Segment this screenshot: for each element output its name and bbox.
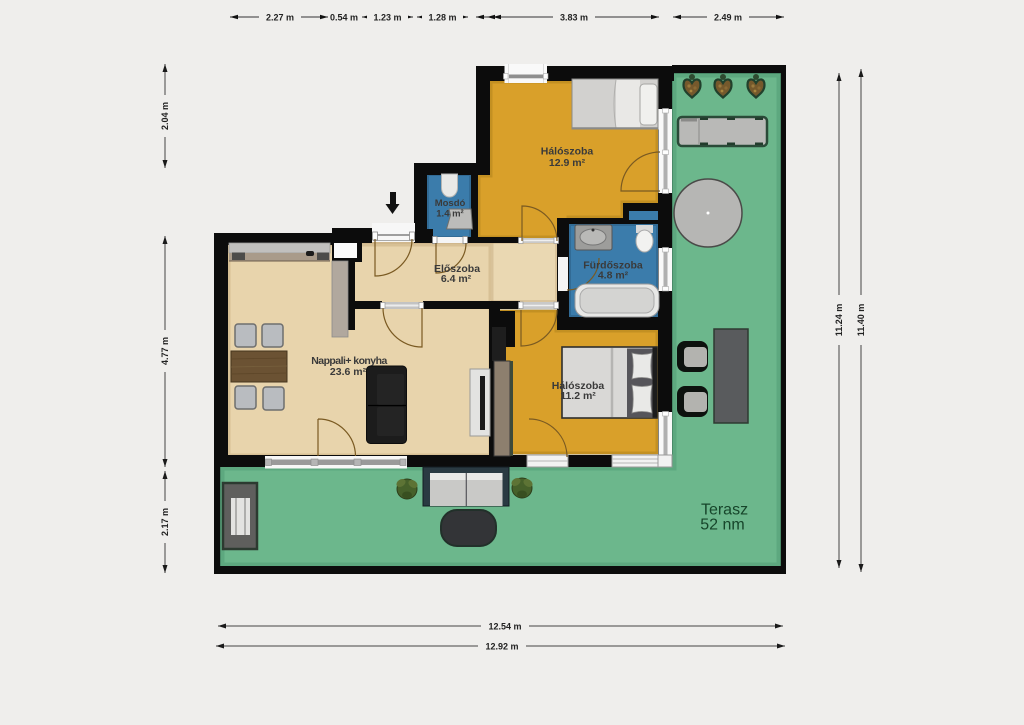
svg-text:2.04 m: 2.04 m <box>160 102 170 130</box>
svg-text:12.9 m²: 12.9 m² <box>549 157 586 169</box>
svg-text:Mosdó: Mosdó <box>435 198 466 209</box>
svg-text:23.6 m²: 23.6 m² <box>330 366 367 378</box>
svg-text:1.28 m: 1.28 m <box>428 13 456 23</box>
svg-text:4.77 m: 4.77 m <box>160 337 170 365</box>
svg-text:11.2 m²: 11.2 m² <box>560 390 596 402</box>
svg-text:11.24 m: 11.24 m <box>834 304 844 337</box>
svg-text:11.40 m: 11.40 m <box>856 304 866 337</box>
svg-text:6.4 m²: 6.4 m² <box>441 273 472 285</box>
svg-text:1.23 m: 1.23 m <box>373 13 401 23</box>
svg-text:0.54 m: 0.54 m <box>330 13 358 23</box>
svg-text:12.92 m: 12.92 m <box>485 642 518 652</box>
svg-text:4.8 m²: 4.8 m² <box>598 270 629 282</box>
svg-text:Hálószoba: Hálószoba <box>541 146 594 158</box>
svg-text:12.54 m: 12.54 m <box>488 622 521 632</box>
svg-text:2.17 m: 2.17 m <box>160 508 170 536</box>
svg-text:52 nm: 52 nm <box>700 517 744 534</box>
svg-text:1.4 m²: 1.4 m² <box>436 209 463 220</box>
svg-text:2.49 m: 2.49 m <box>714 13 742 23</box>
svg-text:3.83 m: 3.83 m <box>560 13 588 23</box>
svg-text:2.27 m: 2.27 m <box>266 13 294 23</box>
